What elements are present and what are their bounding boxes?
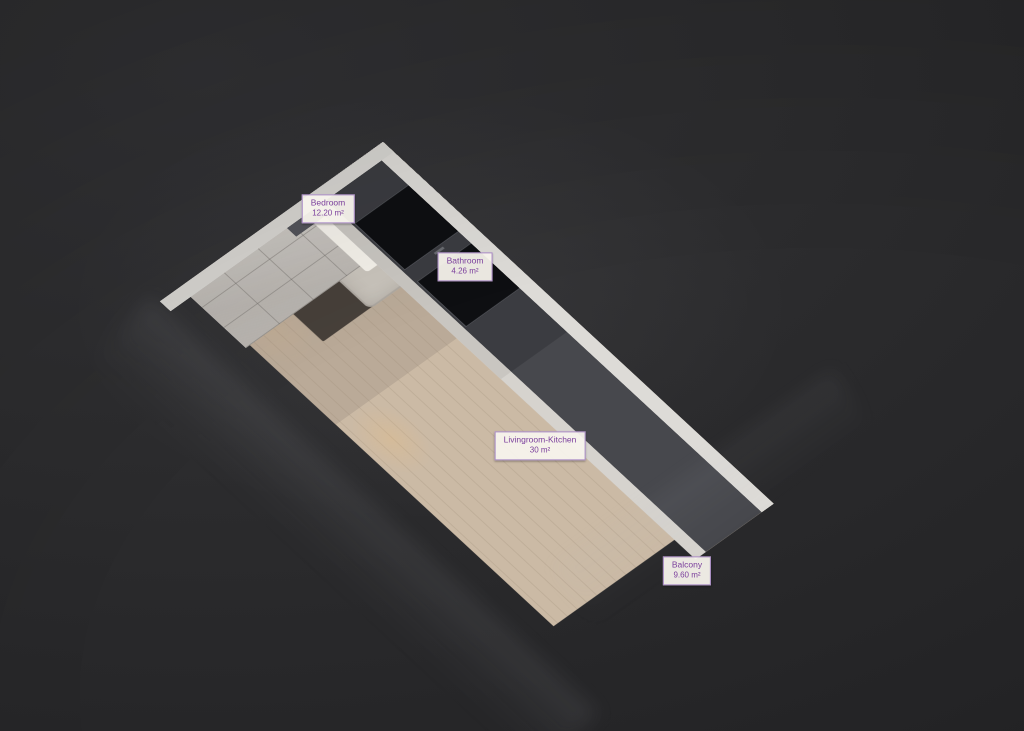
scene-background: Bedroom 12.20 m² Bathroom 4.26 m² Living… bbox=[0, 0, 1024, 731]
room-label-name: Balcony bbox=[672, 559, 702, 570]
room-label-area: 9.60 m² bbox=[672, 571, 702, 582]
room-label-balcony: Balcony 9.60 m² bbox=[663, 556, 711, 585]
room-label-name: Livingroom-Kitchen bbox=[504, 434, 577, 445]
room-label-name: Bedroom bbox=[311, 197, 346, 208]
room-label-bathroom: Bathroom 4.26 m² bbox=[438, 252, 493, 281]
room-label-bedroom: Bedroom 12.20 m² bbox=[302, 194, 355, 223]
room-label-area: 12.20 m² bbox=[311, 209, 346, 220]
room-label-area: 30 m² bbox=[504, 446, 577, 457]
room-label-livingroom-kitchen: Livingroom-Kitchen 30 m² bbox=[495, 431, 586, 460]
room-label-area: 4.26 m² bbox=[447, 267, 484, 278]
wood-floor bbox=[184, 142, 753, 626]
room-label-name: Bathroom bbox=[447, 255, 484, 266]
